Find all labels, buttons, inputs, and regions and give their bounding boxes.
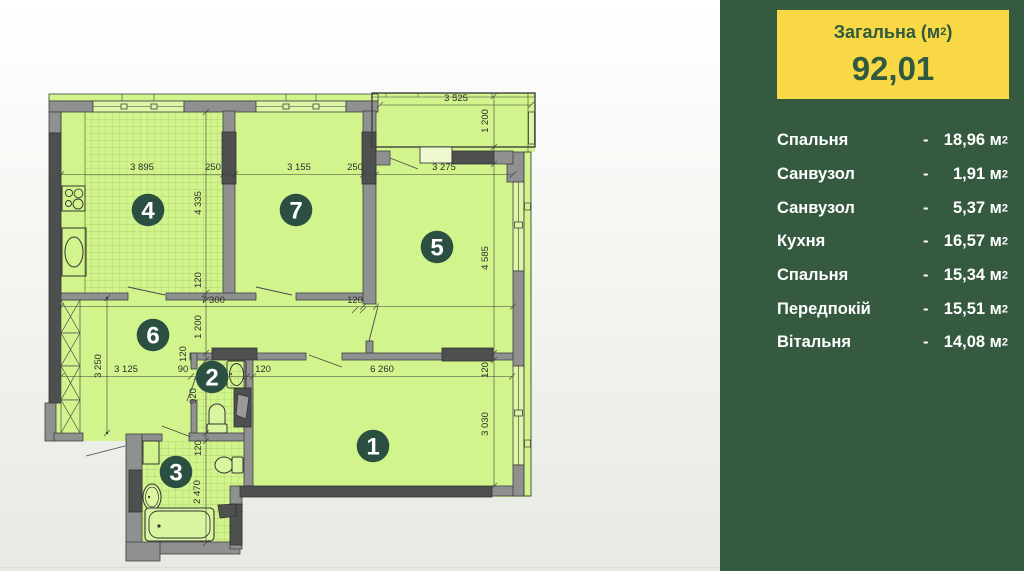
- svg-text:5: 5: [430, 235, 443, 262]
- svg-text:3 895: 3 895: [130, 162, 154, 173]
- svg-text:4 335: 4 335: [193, 191, 204, 215]
- svg-text:120: 120: [193, 440, 204, 456]
- svg-text:3 250: 3 250: [93, 354, 104, 378]
- svg-text:120: 120: [178, 346, 189, 362]
- svg-text:1 200: 1 200: [193, 315, 204, 339]
- svg-text:120: 120: [347, 295, 363, 306]
- svg-text:6 260: 6 260: [370, 364, 394, 375]
- svg-text:120: 120: [480, 362, 491, 378]
- svg-text:1: 1: [366, 434, 379, 461]
- svg-text:250: 250: [347, 162, 363, 173]
- svg-text:3: 3: [169, 460, 182, 487]
- svg-text:1 200: 1 200: [480, 109, 491, 133]
- svg-text:3 030: 3 030: [480, 412, 491, 436]
- svg-text:920: 920: [188, 388, 199, 404]
- svg-text:3 275: 3 275: [432, 162, 456, 173]
- svg-text:7 300: 7 300: [201, 295, 225, 306]
- svg-text:3 525: 3 525: [444, 93, 468, 104]
- svg-text:90: 90: [178, 364, 189, 375]
- svg-text:2: 2: [205, 365, 218, 392]
- svg-text:4: 4: [141, 198, 155, 225]
- svg-text:250: 250: [205, 162, 221, 173]
- svg-text:4 585: 4 585: [480, 246, 491, 270]
- svg-text:6: 6: [146, 323, 159, 350]
- svg-text:3 155: 3 155: [287, 162, 311, 173]
- svg-text:3 125: 3 125: [114, 364, 138, 375]
- svg-text:120: 120: [193, 272, 204, 288]
- svg-text:7: 7: [289, 198, 302, 225]
- svg-text:120: 120: [255, 364, 271, 375]
- svg-text:2 470: 2 470: [192, 480, 203, 504]
